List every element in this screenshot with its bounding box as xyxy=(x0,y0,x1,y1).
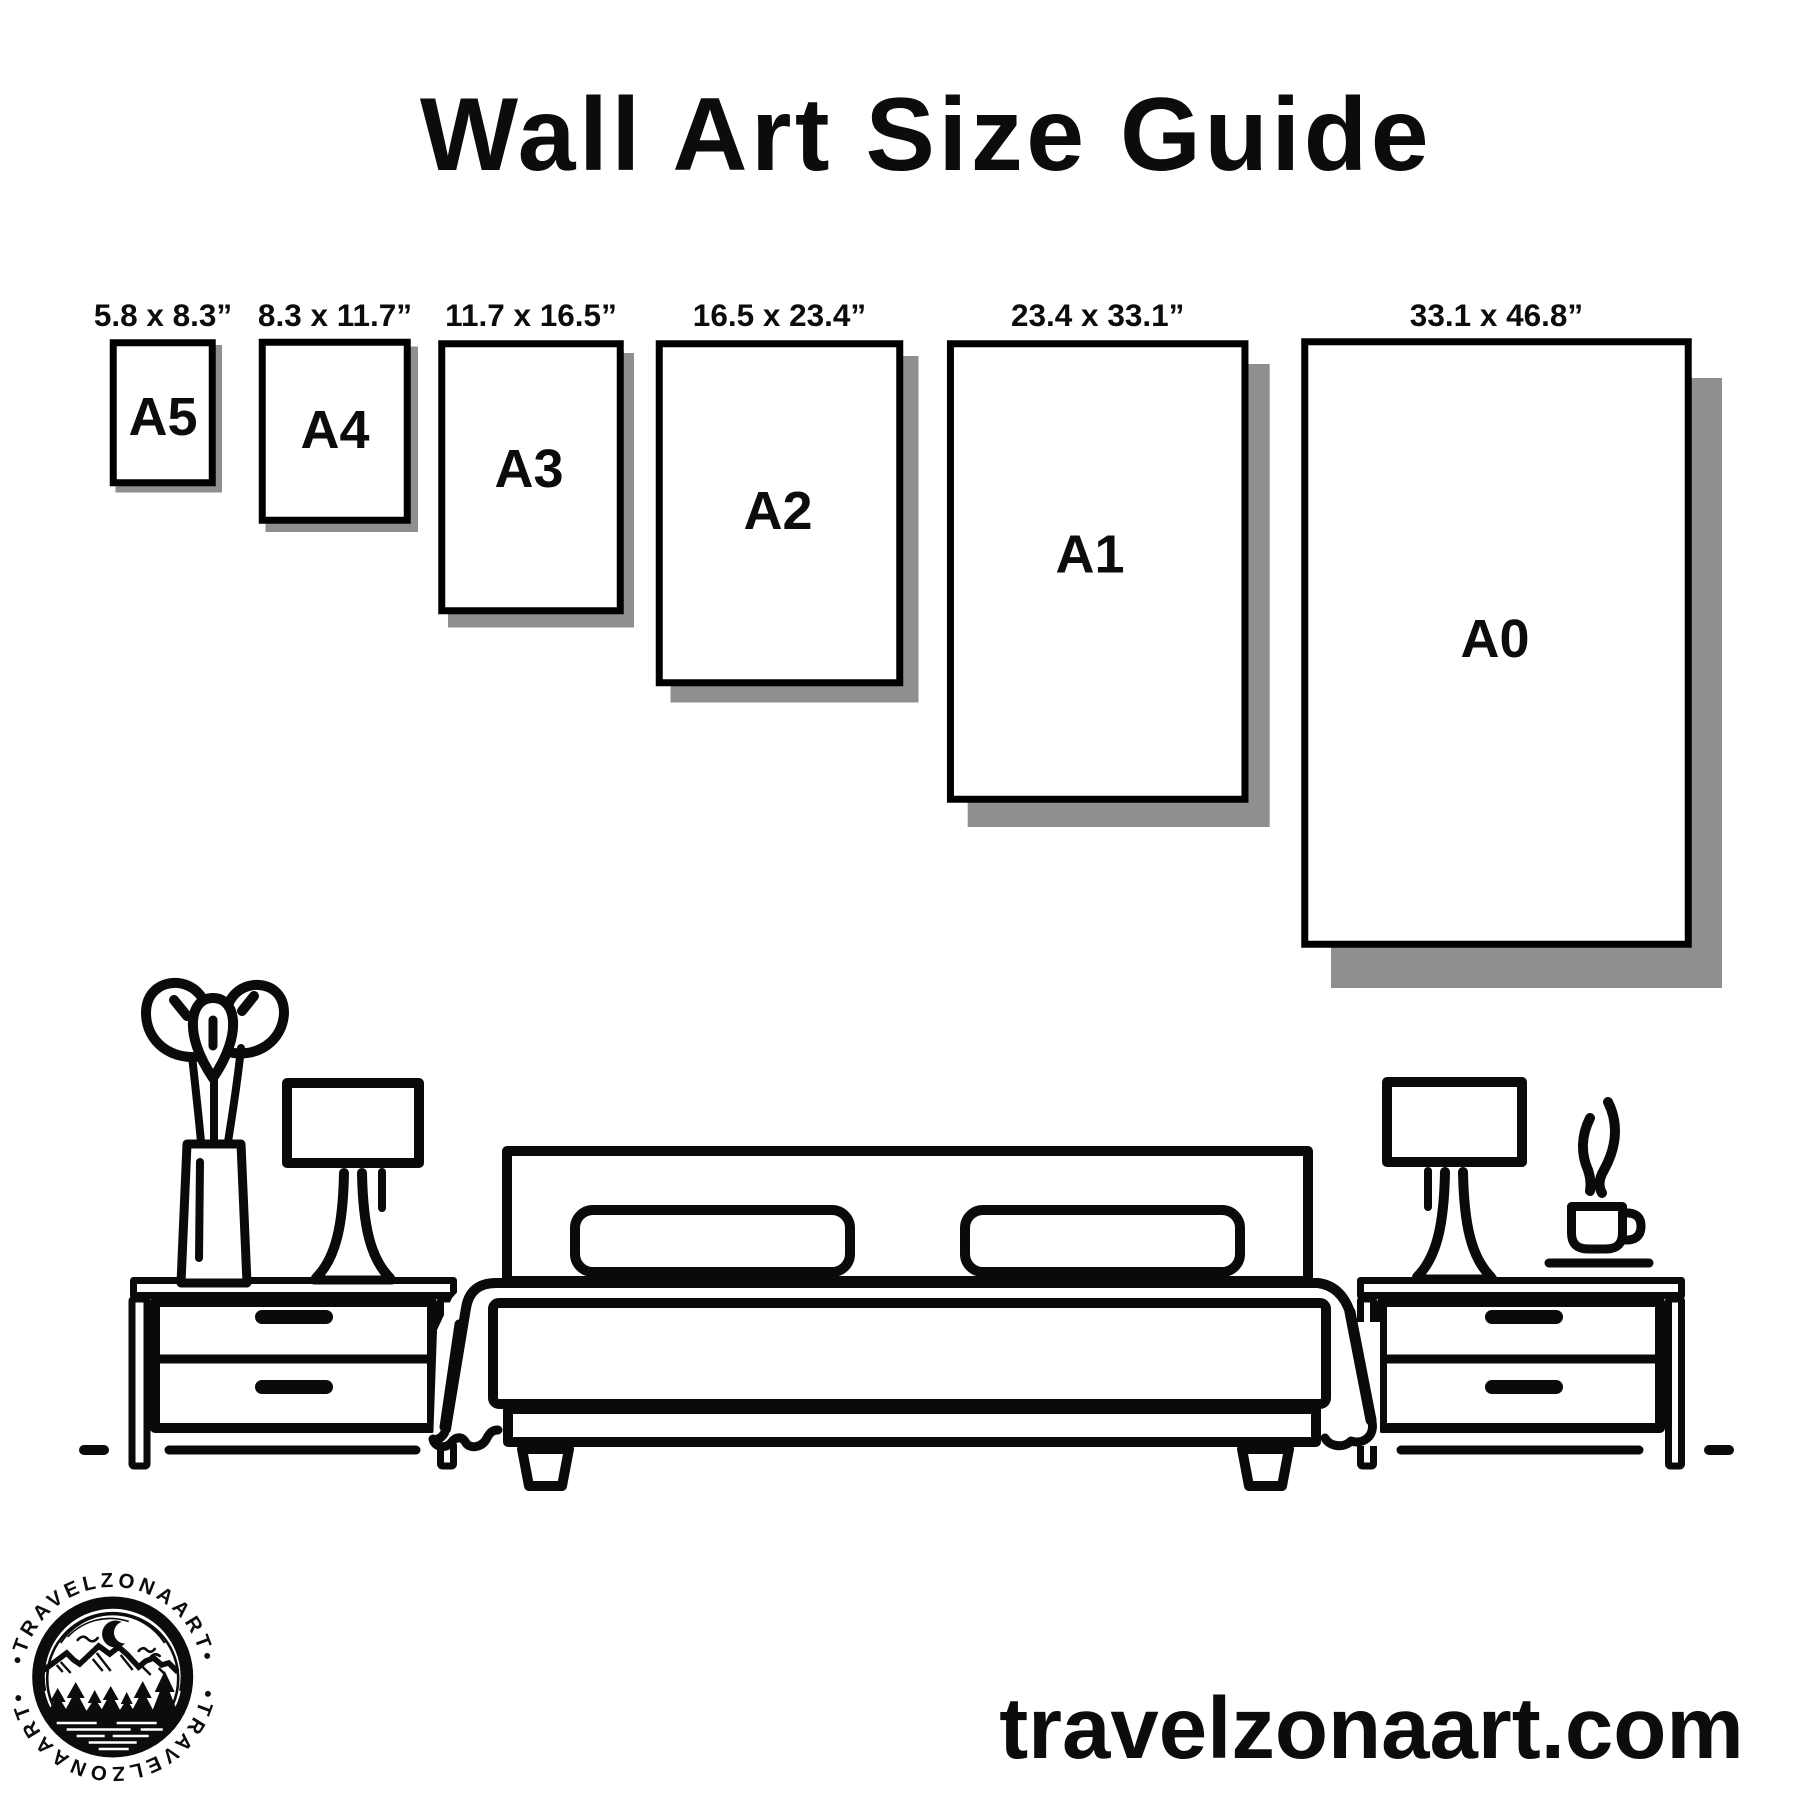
svg-text:A2: A2 xyxy=(743,481,812,541)
svg-text:A1: A1 xyxy=(1055,525,1124,585)
svg-text:A4: A4 xyxy=(300,400,369,460)
svg-text:16.5 x 23.4”: 16.5 x 23.4” xyxy=(693,297,866,333)
svg-text:A3: A3 xyxy=(494,439,563,499)
svg-text:Wall Art Size Guide: Wall Art Size Guide xyxy=(420,77,1432,193)
svg-text:8.3 x 11.7”: 8.3 x 11.7” xyxy=(258,297,412,333)
svg-text:5.8 x 8.3”: 5.8 x 8.3” xyxy=(94,297,232,333)
svg-text:A5: A5 xyxy=(128,387,197,447)
svg-text:11.7 x 16.5”: 11.7 x 16.5” xyxy=(445,297,617,333)
svg-text:A0: A0 xyxy=(1460,609,1529,669)
svg-text:23.4 x 33.1”: 23.4 x 33.1” xyxy=(1011,297,1184,333)
svg-text:travelzonaart.com: travelzonaart.com xyxy=(999,1680,1744,1777)
svg-text:33.1 x 46.8”: 33.1 x 46.8” xyxy=(1410,297,1583,333)
